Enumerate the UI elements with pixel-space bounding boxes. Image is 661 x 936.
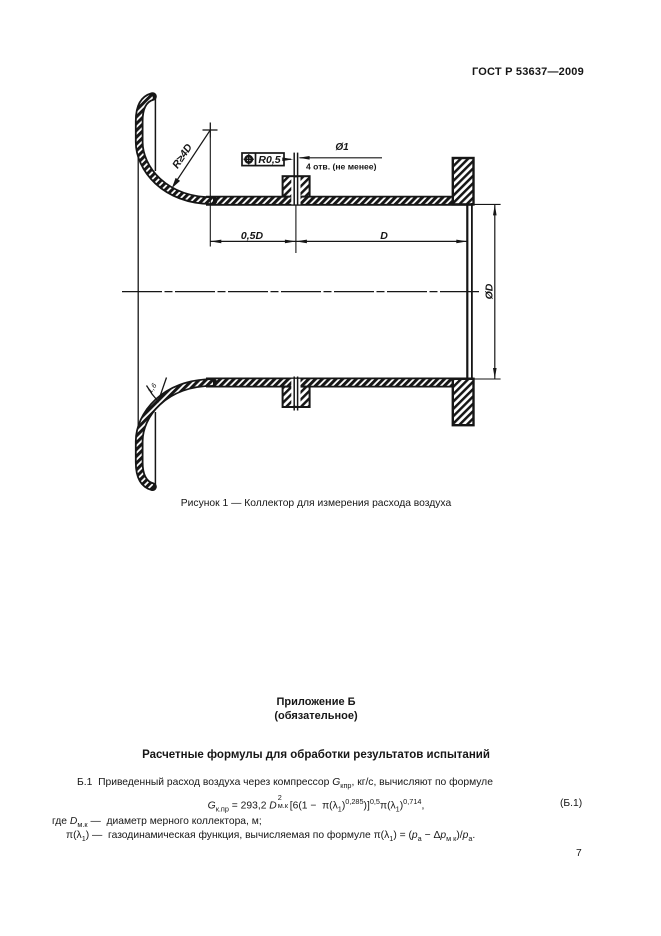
svg-text:Ø1: Ø1 xyxy=(335,142,349,153)
svg-text:D: D xyxy=(380,230,388,242)
svg-text:ØD: ØD xyxy=(484,283,496,299)
svg-text:1,6: 1,6 xyxy=(145,381,158,394)
svg-text:4 отв. (не менее): 4 отв. (не менее) xyxy=(306,162,377,172)
svg-text:R0,5: R0,5 xyxy=(258,154,280,166)
svg-text:0,5D: 0,5D xyxy=(241,230,264,242)
svg-text:R≥4D: R≥4D xyxy=(170,142,195,171)
